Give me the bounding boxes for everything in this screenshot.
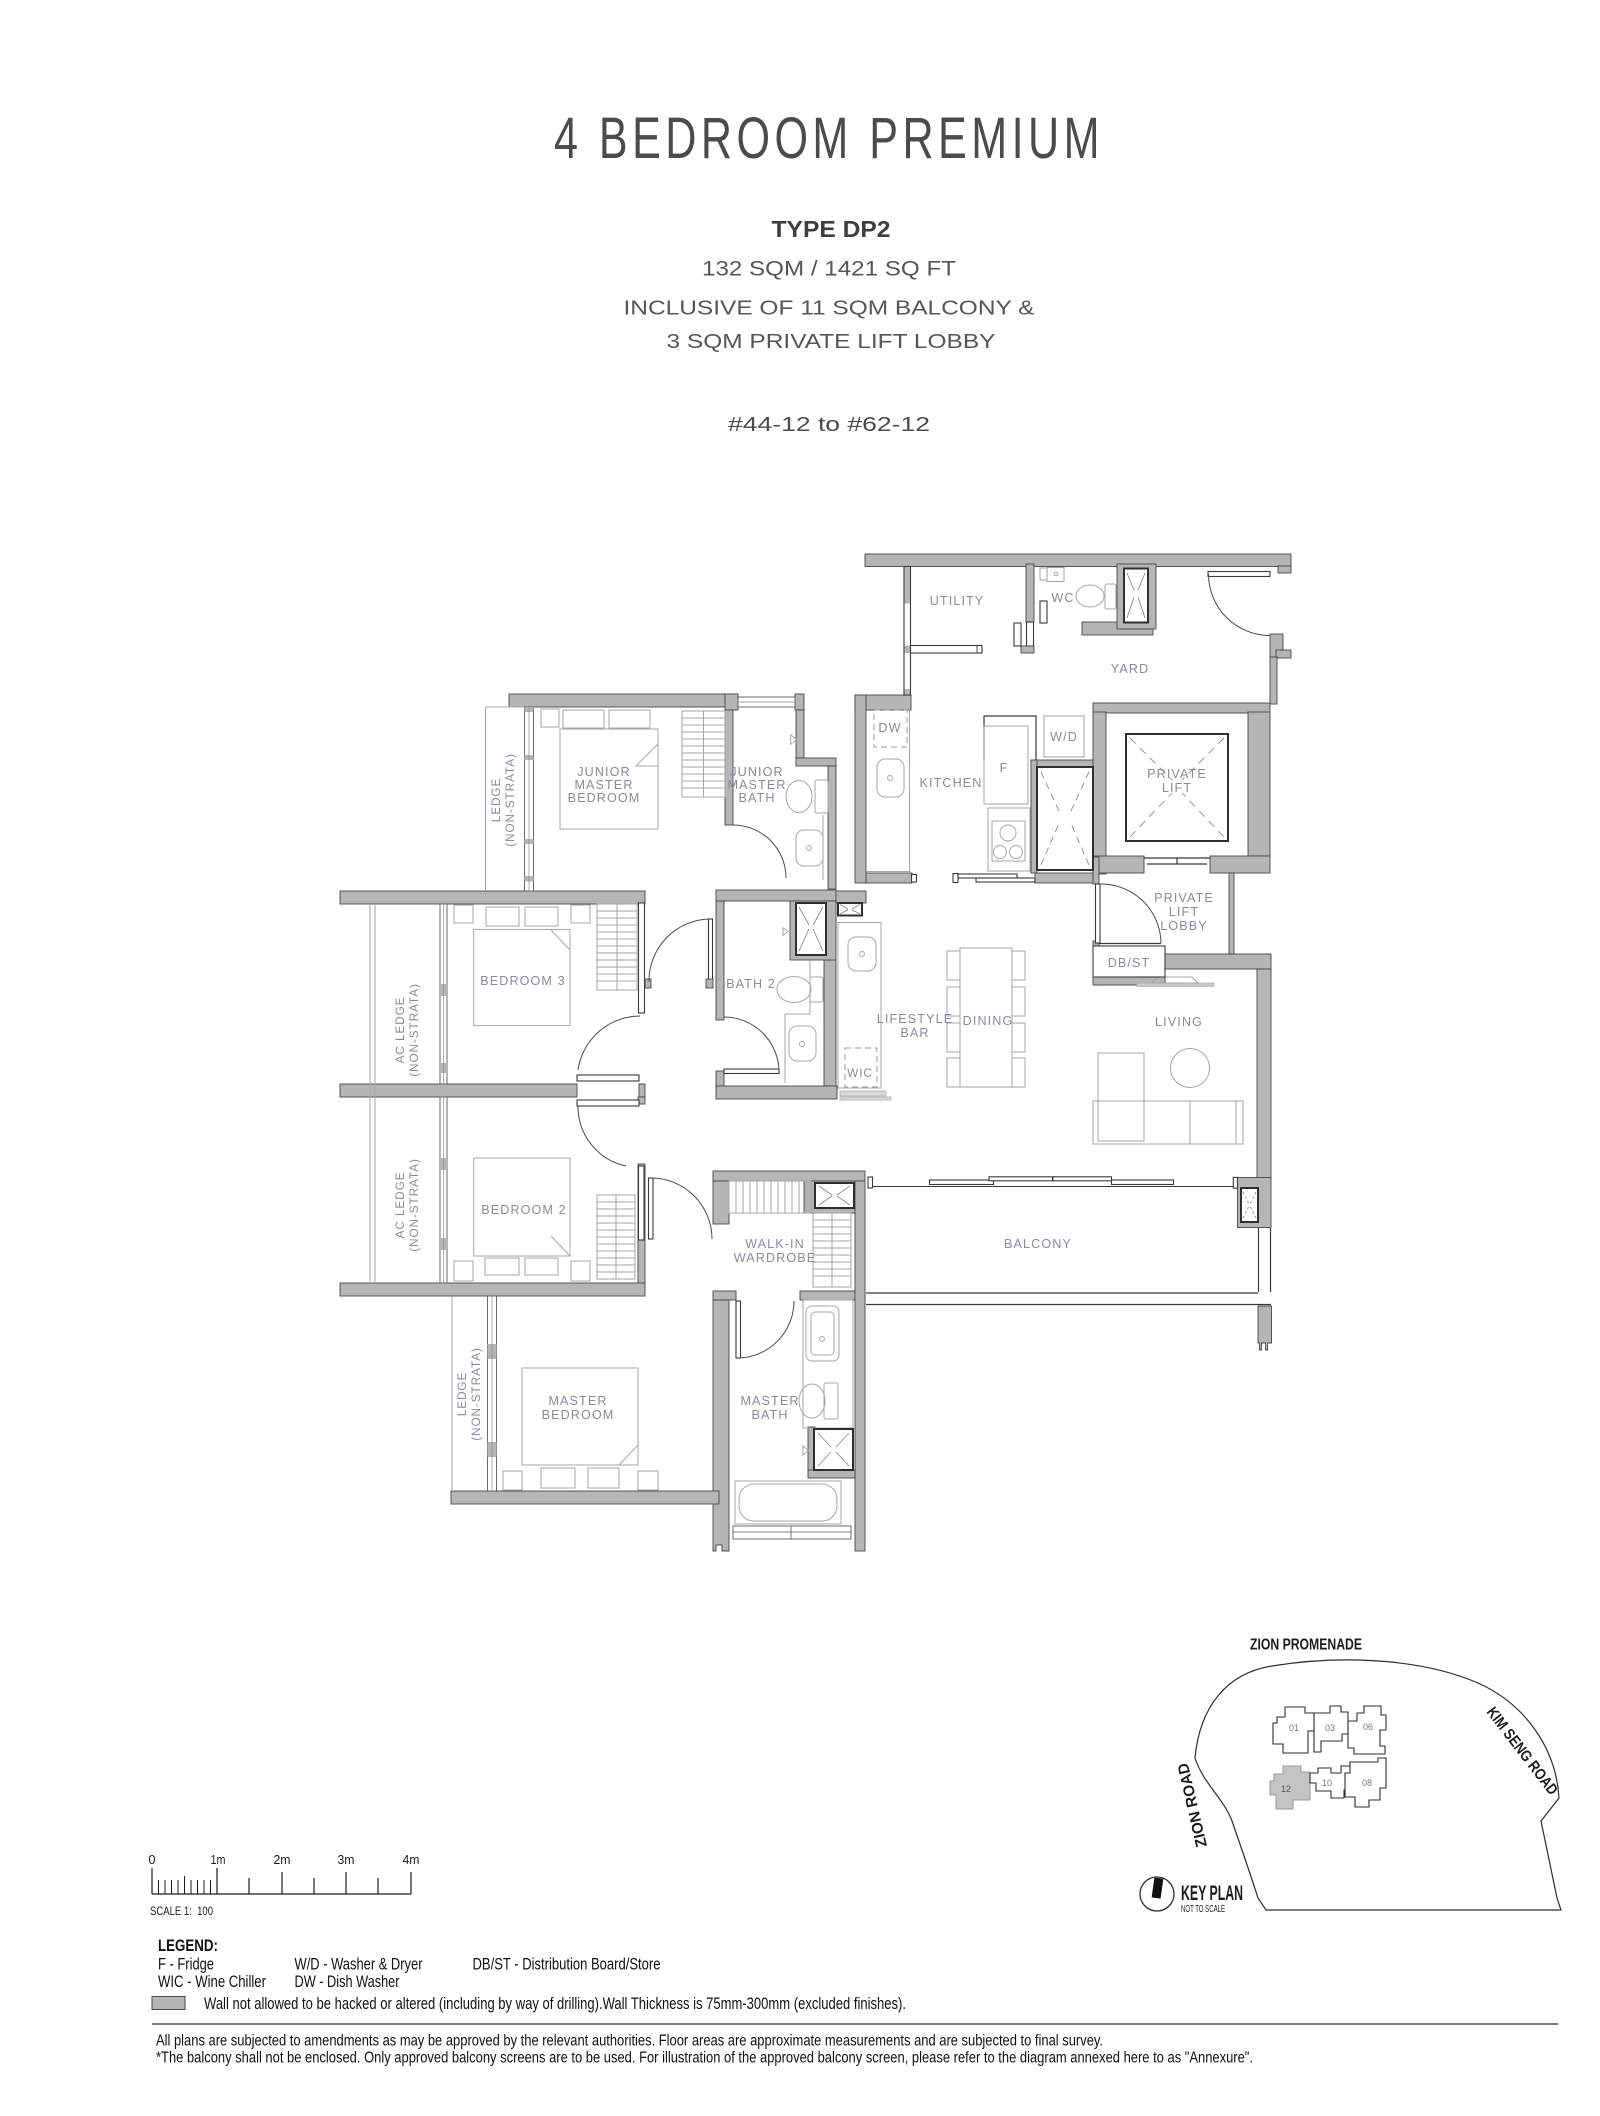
svg-text:WALK-IN: WALK-IN (745, 1237, 805, 1251)
svg-text:LEGEND:: LEGEND: (158, 1936, 218, 1955)
svg-text:UTILITY: UTILITY (930, 594, 985, 608)
svg-text:MASTER: MASTER (548, 1394, 607, 1408)
svg-text:LIFT: LIFT (1169, 905, 1199, 919)
svg-text:F: F (1000, 761, 1009, 775)
svg-text:LEDGE: LEDGE (489, 778, 503, 823)
svg-text:MASTER: MASTER (574, 778, 633, 792)
svg-text:DW: DW (878, 721, 901, 735)
svg-text:DW - Dish Washer: DW - Dish Washer (295, 1973, 400, 1991)
svg-text:0: 0 (149, 1853, 156, 1867)
svg-text:(NON-STRATA): (NON-STRATA) (503, 753, 517, 847)
svg-text:(NON-STRATA): (NON-STRATA) (407, 1158, 421, 1252)
svg-text:12: 12 (1281, 1784, 1291, 1794)
svg-text:LEDGE: LEDGE (455, 1372, 469, 1417)
svg-text:4m: 4m (403, 1853, 420, 1867)
svg-text:BEDROOM 2: BEDROOM 2 (481, 1203, 566, 1217)
svg-text:*The balcony shall not be encl: *The balcony shall not be enclosed. Only… (156, 2050, 1253, 2067)
svg-text:AC LEDGE: AC LEDGE (393, 997, 407, 1064)
svg-text:DINING: DINING (963, 1014, 1014, 1028)
svg-text:ZION ROAD: ZION ROAD (1175, 1761, 1211, 1849)
svg-text:BAR: BAR (900, 1026, 929, 1040)
svg-text:INCLUSIVE OF 11 SQM BALCONY &: INCLUSIVE OF 11 SQM BALCONY & (624, 297, 1035, 320)
svg-text:08: 08 (1362, 1778, 1372, 1788)
svg-text:3m: 3m (338, 1853, 355, 1867)
svg-text:F - Fridge: F - Fridge (158, 1956, 214, 1974)
svg-text:(NON-STRATA): (NON-STRATA) (407, 983, 421, 1077)
svg-text:(NON-STRATA): (NON-STRATA) (469, 1347, 483, 1441)
svg-text:W/D - Washer & Dryer: W/D - Washer & Dryer (295, 1956, 423, 1974)
svg-text:WC: WC (1051, 591, 1074, 605)
svg-text:YARD: YARD (1111, 662, 1149, 676)
svg-text:4 BEDROOM PREMIUM: 4 BEDROOM PREMIUM (554, 106, 1104, 171)
svg-text:DB/ST: DB/ST (1108, 956, 1151, 970)
svg-text:PRIVATE: PRIVATE (1147, 767, 1207, 781)
svg-text:MASTER: MASTER (727, 778, 786, 792)
svg-text:WIC - Wine Chiller: WIC - Wine Chiller (158, 1973, 266, 1991)
svg-text:LIFESTYLE: LIFESTYLE (877, 1012, 953, 1026)
svg-text:BATH: BATH (751, 1408, 788, 1422)
svg-text:Wall not allowed to be hacked: Wall not allowed to be hacked or altered… (204, 1995, 906, 2013)
svg-text:MASTER: MASTER (740, 1394, 799, 1408)
svg-text:All plans are subjected to ame: All plans are subjected to amendments as… (156, 2033, 1103, 2050)
svg-text:KEY PLAN: KEY PLAN (1181, 1882, 1243, 1905)
svg-text:AC LEDGE: AC LEDGE (393, 1172, 407, 1239)
svg-text:1m: 1m (211, 1853, 226, 1867)
svg-text:LIFT: LIFT (1162, 781, 1192, 795)
svg-text:#44-12 to #62-12: #44-12 to #62-12 (728, 414, 930, 436)
svg-text:06: 06 (1363, 1722, 1373, 1732)
svg-text:BEDROOM: BEDROOM (542, 1408, 615, 1422)
svg-text:LOBBY: LOBBY (1160, 919, 1208, 933)
svg-text:WIC: WIC (847, 1066, 873, 1080)
svg-text:DB/ST - Distribution Board/Sto: DB/ST - Distribution Board/Store (473, 1956, 661, 1974)
svg-text:JUNIOR: JUNIOR (730, 765, 783, 779)
svg-text:KITCHEN: KITCHEN (920, 776, 983, 790)
svg-text:W/D: W/D (1050, 730, 1078, 744)
svg-text:BATH: BATH (738, 791, 775, 805)
svg-text:BALCONY: BALCONY (1004, 1237, 1072, 1251)
svg-text:KIM SENG ROAD: KIM SENG ROAD (1483, 1704, 1561, 1798)
svg-text:JUNIOR: JUNIOR (577, 765, 630, 779)
svg-text:PRIVATE: PRIVATE (1154, 891, 1214, 905)
svg-text:TYPE DP2: TYPE DP2 (772, 216, 891, 242)
svg-text:10: 10 (1322, 1778, 1332, 1788)
svg-text:WARDROBE: WARDROBE (734, 1251, 817, 1265)
svg-text:2m: 2m (274, 1853, 291, 1867)
svg-text:LIVING: LIVING (1155, 1015, 1203, 1029)
svg-text:3 SQM PRIVATE LIFT LOBBY: 3 SQM PRIVATE LIFT LOBBY (667, 330, 996, 353)
svg-text:BEDROOM 3: BEDROOM 3 (480, 974, 565, 988)
svg-text:ZION PROMENADE: ZION PROMENADE (1250, 1637, 1362, 1654)
svg-text:NOT TO SCALE: NOT TO SCALE (1181, 1904, 1225, 1915)
svg-text:BATH 2: BATH 2 (726, 977, 776, 991)
svg-text:132 SQM / 1421 SQ FT: 132 SQM / 1421 SQ FT (702, 257, 956, 281)
svg-text:03: 03 (1325, 1723, 1335, 1733)
svg-text:01: 01 (1289, 1723, 1299, 1733)
svg-text:BEDROOM: BEDROOM (568, 791, 641, 805)
svg-text:SCALE 1: 100: SCALE 1: 100 (150, 1906, 213, 1918)
